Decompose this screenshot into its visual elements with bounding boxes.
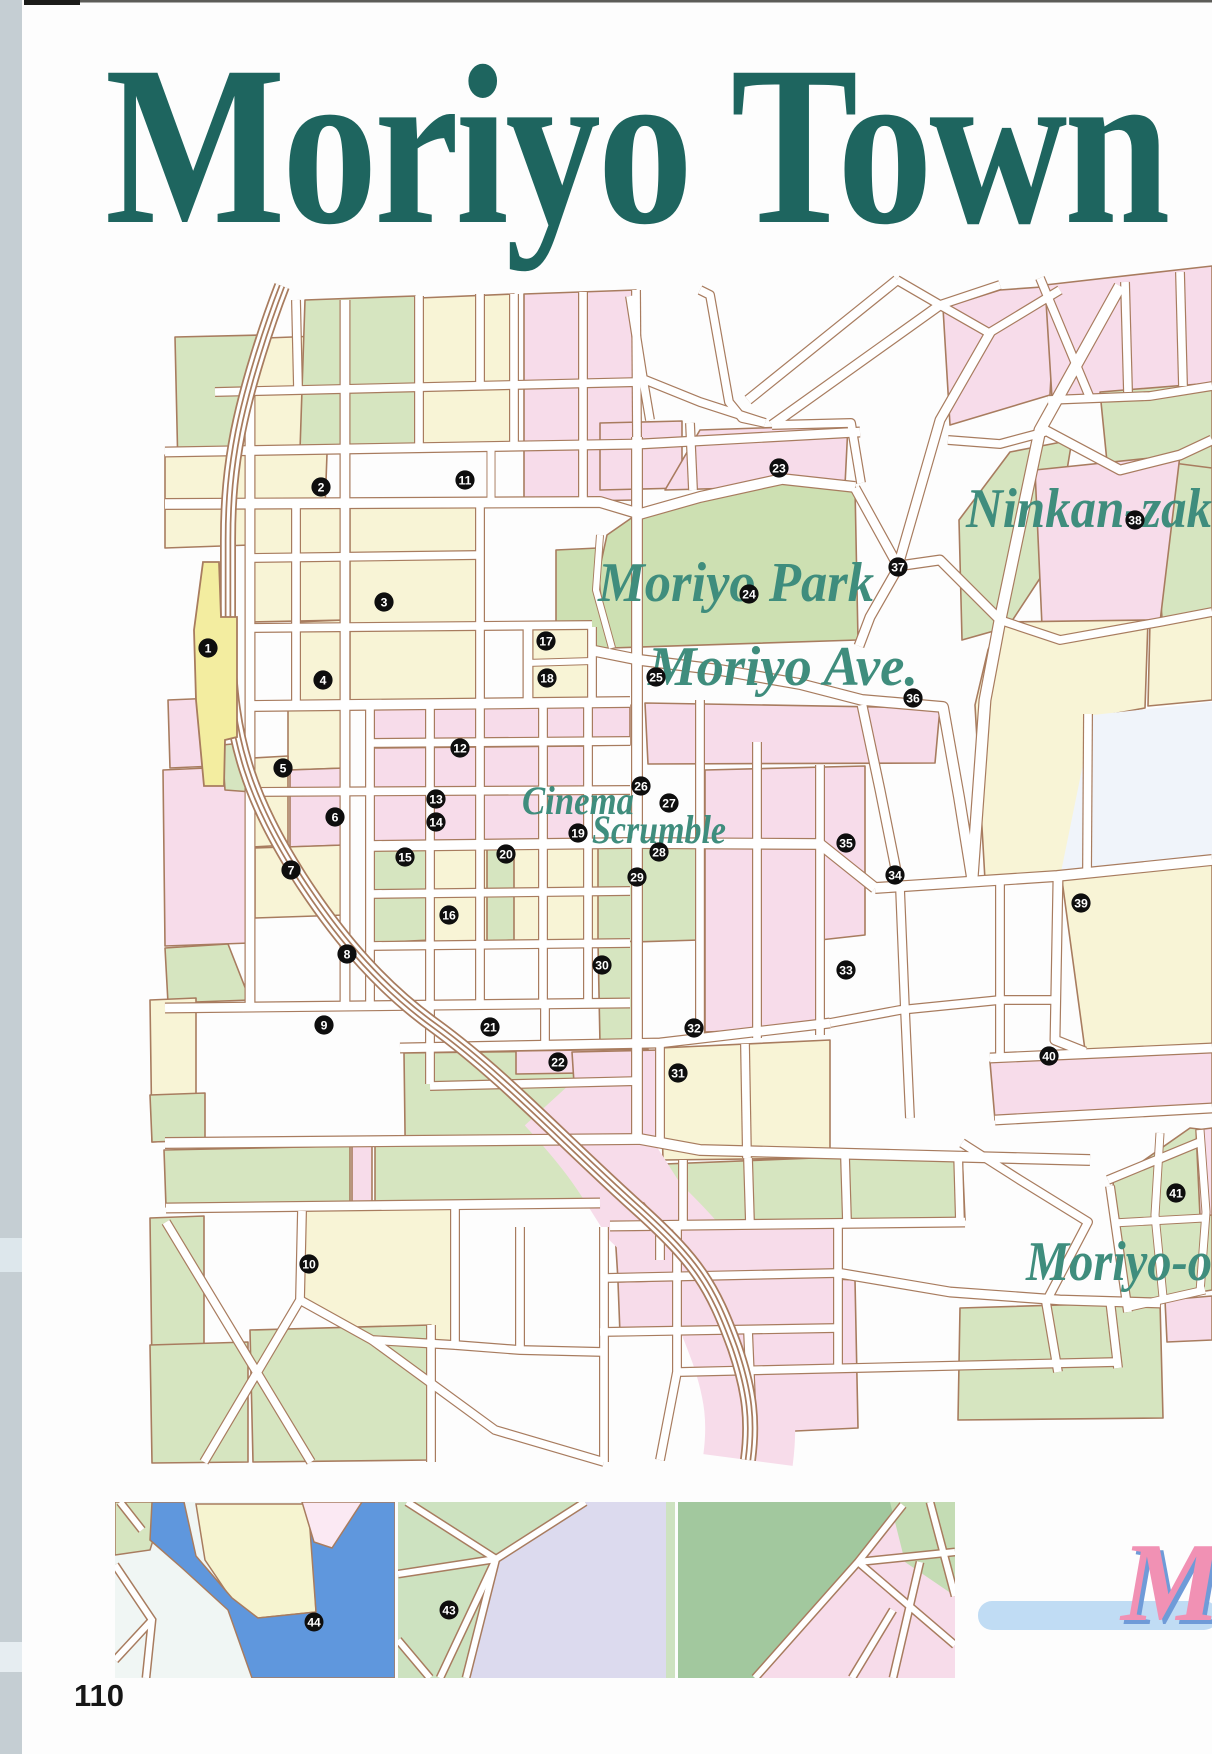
svg-text:38: 38 [1128, 513, 1142, 527]
svg-text:8: 8 [344, 947, 351, 961]
svg-text:1: 1 [205, 641, 212, 655]
svg-text:33: 33 [839, 963, 853, 977]
svg-text:2: 2 [318, 480, 325, 494]
svg-text:23: 23 [772, 461, 786, 475]
svg-text:14: 14 [429, 815, 443, 829]
svg-text:19: 19 [571, 826, 585, 840]
svg-text:6: 6 [332, 810, 339, 824]
svg-text:43: 43 [442, 1603, 456, 1617]
svg-text:21: 21 [483, 1020, 497, 1034]
svg-text:40: 40 [1042, 1049, 1056, 1063]
svg-text:110: 110 [74, 1678, 124, 1713]
svg-text:34: 34 [888, 868, 902, 882]
svg-text:32: 32 [687, 1021, 701, 1035]
svg-text:18: 18 [540, 671, 554, 685]
svg-text:11: 11 [459, 473, 472, 487]
svg-text:17: 17 [539, 634, 553, 648]
svg-text:Moriyo Ave.: Moriyo Ave. [647, 636, 918, 698]
svg-text:25: 25 [649, 670, 663, 684]
svg-text:27: 27 [662, 796, 676, 810]
svg-text:Ninkan-zak: Ninkan-zak [965, 478, 1212, 540]
svg-text:44: 44 [307, 1615, 321, 1629]
svg-text:16: 16 [442, 908, 456, 922]
svg-text:3: 3 [381, 595, 388, 609]
svg-text:5: 5 [280, 761, 287, 775]
svg-text:Moriyo Park: Moriyo Park [597, 552, 874, 614]
svg-text:M: M [1119, 1521, 1212, 1645]
svg-text:36: 36 [906, 691, 920, 705]
svg-text:39: 39 [1074, 896, 1088, 910]
svg-text:10: 10 [302, 1257, 316, 1271]
svg-text:Moriyo-o: Moriyo-o [1025, 1231, 1212, 1293]
svg-text:31: 31 [671, 1066, 685, 1080]
svg-text:4: 4 [320, 673, 327, 687]
svg-text:35: 35 [839, 836, 853, 850]
svg-text:24: 24 [742, 587, 756, 601]
svg-text:26: 26 [634, 779, 648, 793]
svg-text:20: 20 [499, 847, 513, 861]
svg-text:13: 13 [429, 792, 443, 806]
svg-text:7: 7 [288, 863, 295, 877]
svg-text:9: 9 [321, 1018, 328, 1032]
svg-text:29: 29 [630, 870, 644, 884]
svg-text:12: 12 [453, 741, 467, 755]
svg-text:22: 22 [551, 1055, 565, 1069]
svg-text:37: 37 [891, 560, 905, 574]
svg-text:41: 41 [1169, 1186, 1183, 1200]
svg-text:15: 15 [398, 850, 412, 864]
svg-text:30: 30 [595, 958, 609, 972]
svg-text:28: 28 [652, 845, 666, 859]
